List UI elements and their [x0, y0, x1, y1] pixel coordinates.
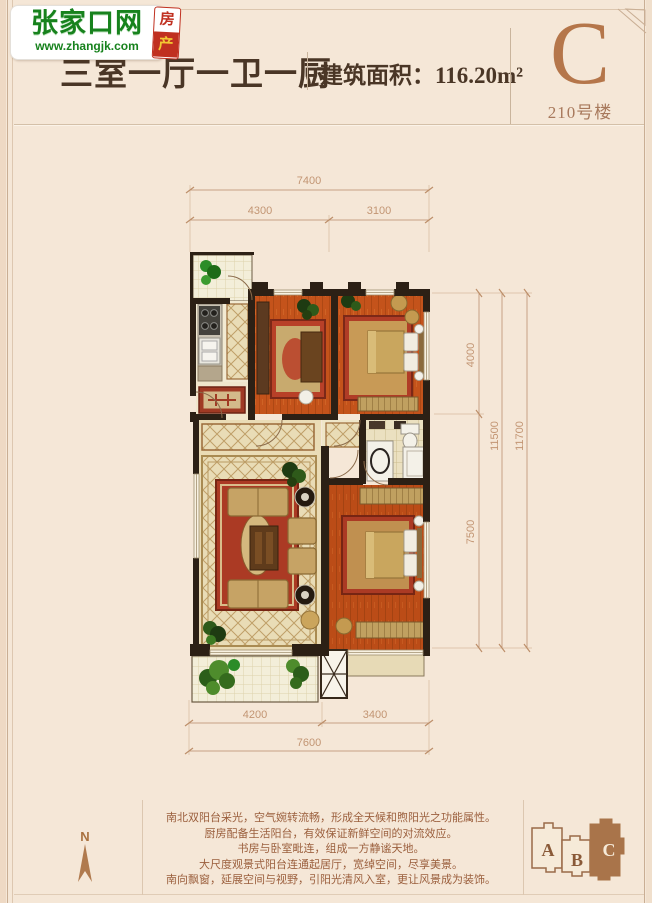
header-rule	[14, 124, 644, 125]
dim-right-inner-total: 11500	[489, 421, 501, 451]
bay-window	[344, 652, 424, 676]
frame-line-bottom	[14, 894, 644, 895]
compass-needle-icon	[78, 844, 92, 882]
site-name: 张家口网	[11, 8, 163, 38]
header-vertical-divider	[510, 28, 511, 124]
pillow	[404, 554, 417, 576]
floorplan: 7400 4300 3100 4000 7500 11500 11700 420…	[0, 150, 652, 770]
kitchen-runner-rug	[227, 304, 248, 379]
armchair	[288, 518, 316, 544]
headboard	[419, 329, 424, 377]
real-estate-badge: 房 产	[152, 6, 182, 59]
legend-letter-b: B	[571, 850, 583, 870]
badge-char-top: 房	[154, 7, 180, 32]
dim-right-outer-total: 11700	[514, 421, 526, 451]
site-logo[interactable]: 张家口网 www.zhangjk.com 房 产	[10, 5, 164, 60]
bench-master	[356, 622, 424, 638]
description-line: 南北双阳台采光，空气婉转流畅，形成全天候和煦阳光之功能属性。	[150, 811, 512, 827]
dim-top-total: 7400	[297, 175, 321, 187]
site-url: www.zhangjk.com	[11, 38, 163, 54]
pillow	[404, 530, 417, 552]
title-divider	[307, 52, 308, 90]
bench-north	[358, 397, 418, 411]
pouf	[301, 611, 319, 629]
pillow	[404, 333, 418, 351]
dresser	[360, 488, 424, 504]
bath-mat	[369, 421, 385, 429]
kitchen-corner-counter	[198, 366, 222, 381]
dim-right-lower: 7500	[465, 520, 477, 544]
description-block: 南北双阳台采光，空气婉转流畅，形成全天候和煦阳光之功能属性。 厨房配备生活阳台，…	[150, 811, 512, 889]
coffee-table	[250, 526, 278, 570]
dim-bottom-left: 4200	[243, 709, 267, 721]
dim-top-right: 3100	[367, 205, 391, 217]
headboard	[417, 528, 422, 578]
unit-letter: C	[536, 6, 624, 102]
dim-right-upper: 4000	[465, 343, 477, 367]
study-cabinet	[257, 302, 269, 394]
armchair	[288, 548, 316, 574]
building-legend: A B C	[524, 814, 628, 886]
building-number: 210号楼	[524, 98, 636, 123]
footer-divider-left	[142, 800, 143, 895]
dim-bottom-total: 7600	[297, 737, 321, 749]
dim-top-left: 4300	[248, 205, 272, 217]
description-line: 大尺度观景式阳台连通起居厅，宽绰空间，尽享美景。	[150, 858, 512, 874]
badge-char-bottom: 产	[153, 31, 179, 57]
description-line: 厨房配备生活阳台，有效保证新鲜空间的对流效应。	[150, 827, 512, 843]
compass: N	[62, 826, 108, 888]
compass-north-label: N	[80, 829, 89, 844]
legend-letter-a: A	[542, 840, 555, 860]
corridor-rug	[326, 423, 362, 447]
dim-bottom-right: 3400	[363, 709, 387, 721]
description-line: 南向飘窗，延展空间与视野，引阳光清风入室，更让风景成为装饰。	[150, 873, 512, 889]
study-desk	[301, 332, 322, 382]
pillow	[404, 353, 418, 371]
floor-lamp	[299, 390, 313, 404]
furniture	[198, 260, 427, 695]
pouf	[336, 618, 352, 634]
description-line: 书房与卧室毗连，组成一方静谧天地。	[150, 842, 512, 858]
legend-letter-c: C	[603, 840, 616, 860]
floor-area-label: 建筑面积：116.20m²	[320, 56, 523, 90]
